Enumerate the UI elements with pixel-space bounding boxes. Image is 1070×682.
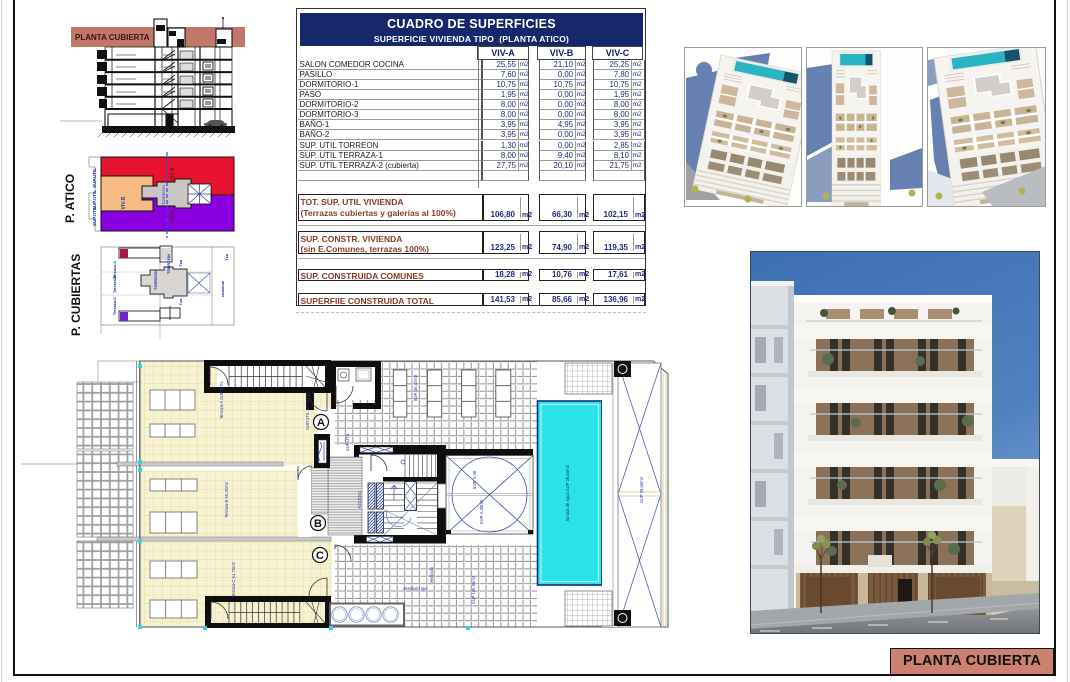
svg-text:Terraza-C 61,75m2: Terraza-C 61,75m2: [231, 561, 236, 598]
svg-text:SUP.UTIL: SUP.UTIL: [92, 206, 97, 226]
svg-text:TORREON: TORREON: [166, 254, 171, 274]
svg-text:solarium: solarium: [220, 280, 225, 297]
svg-text:TORREON: TORREON: [153, 270, 158, 290]
svg-text:B: B: [314, 518, 322, 530]
svg-text:Terraza-B 66,30m2: Terraza-B 66,30m2: [224, 482, 229, 518]
svg-text:TORREON: TORREON: [161, 185, 166, 205]
svg-text:SUP 136,96m2: SUP 136,96m2: [471, 575, 476, 604]
svg-text:Terraza-A SUP UTIL: Terraza-A SUP UTIL: [219, 380, 224, 419]
svg-text:PLANTA CUBIERTA: PLANTA CUBIERTA: [75, 33, 150, 42]
svg-text:C: C: [316, 550, 324, 562]
svg-text:vestibulo: vestibulo: [429, 566, 434, 583]
svg-text:VIV-C: VIV-C: [170, 209, 176, 222]
svg-text:lamina de agua SUP 28,60m2: lamina de agua SUP 28,60m2: [565, 464, 570, 520]
svg-text:Tza: Tza: [178, 259, 183, 266]
svg-text:A: A: [317, 417, 325, 429]
svg-text:Terraza-C: Terraza-C: [112, 297, 117, 315]
svg-text:VIV-B: VIV-B: [121, 196, 127, 209]
svg-text:SUP.UTIL 17,75m2: SUP.UTIL 17,75m2: [305, 394, 310, 430]
svg-text:SUP 28,60m2: SUP 28,60m2: [639, 476, 644, 503]
svg-text:SUP. 6,08: SUP. 6,08: [472, 470, 477, 489]
svg-text:SUP. 6,08m2: SUP. 6,08m2: [479, 499, 484, 524]
svg-text:Tza: Tza: [224, 253, 229, 260]
svg-text:vestibulo tipo: vestibulo tipo: [403, 586, 428, 591]
svg-text:SUP. 36,40m2: SUP. 36,40m2: [413, 374, 418, 401]
svg-text:SUP.UTIL: SUP.UTIL: [92, 168, 97, 188]
svg-text:ACCESO: ACCESO: [357, 490, 362, 508]
svg-text:Tza: Tza: [178, 298, 183, 305]
svg-text:Terraza-B: Terraza-B: [112, 275, 117, 293]
svg-text:VIV-A: VIV-A: [170, 167, 176, 180]
svg-text:SUP.UTIL: SUP.UTIL: [345, 432, 350, 451]
